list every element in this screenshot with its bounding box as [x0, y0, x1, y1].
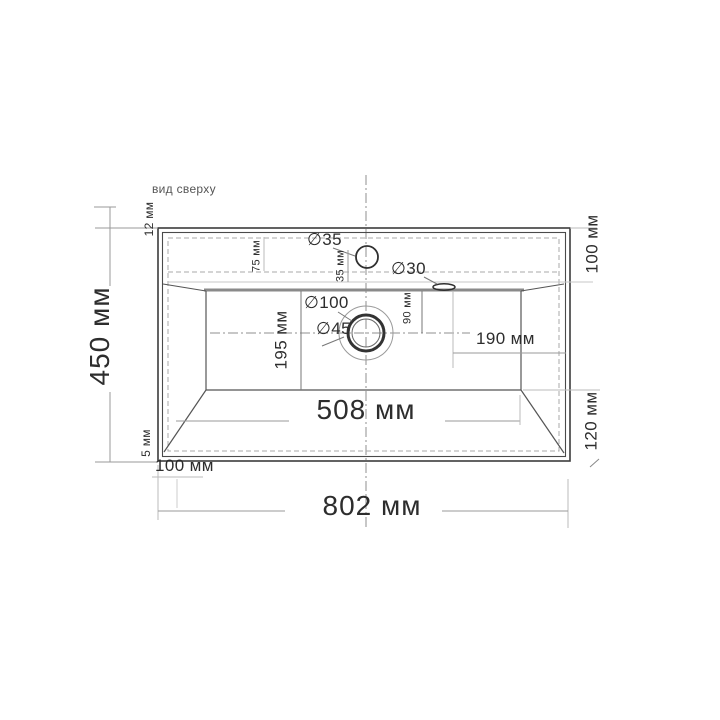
dim-basin-depth-label: 195 мм: [273, 311, 290, 370]
dia-drain-outer-label: ∅100: [304, 294, 349, 311]
view-title: вид сверху: [152, 183, 216, 195]
dim-drain-right-label: 190 мм: [476, 330, 535, 347]
basin-back-left-diagonal: [163, 284, 206, 291]
dim-faucet-center-label: 35 мм: [336, 250, 347, 282]
basin-slope-front-right: [521, 390, 564, 453]
dim-overall-depth-label: 450 мм: [86, 287, 114, 386]
dim-bottom-left-offset-label: 100 мм: [155, 457, 214, 474]
dim-faucet-back-label: 75 мм: [252, 240, 263, 272]
dia-overflow-label: ∅30: [391, 260, 426, 277]
basin-back-right-diagonal: [521, 284, 564, 291]
dia-drain-label: ∅45: [316, 320, 351, 337]
dim-front-right-label: 120 мм: [583, 392, 600, 451]
dim-deck-right-label: 100 мм: [584, 215, 601, 274]
faucet-hole: [356, 246, 378, 268]
dim-bottom-rim-label: 5 мм: [140, 429, 152, 457]
dia-faucet-label: ∅35: [307, 231, 342, 248]
dimension-lines: [94, 207, 600, 528]
dim-overall-width-label: 802 мм: [323, 492, 422, 520]
sink-technical-drawing: вид сверху 12 мм 450 мм 5 мм 75 мм 35 мм…: [0, 0, 720, 720]
overflow-leader-line: [424, 277, 437, 284]
dim-drain-back-label: 90 мм: [403, 292, 414, 324]
dim-top-rim-label: 12 мм: [143, 202, 155, 237]
dim-basin-width-label: 508 мм: [317, 396, 416, 424]
